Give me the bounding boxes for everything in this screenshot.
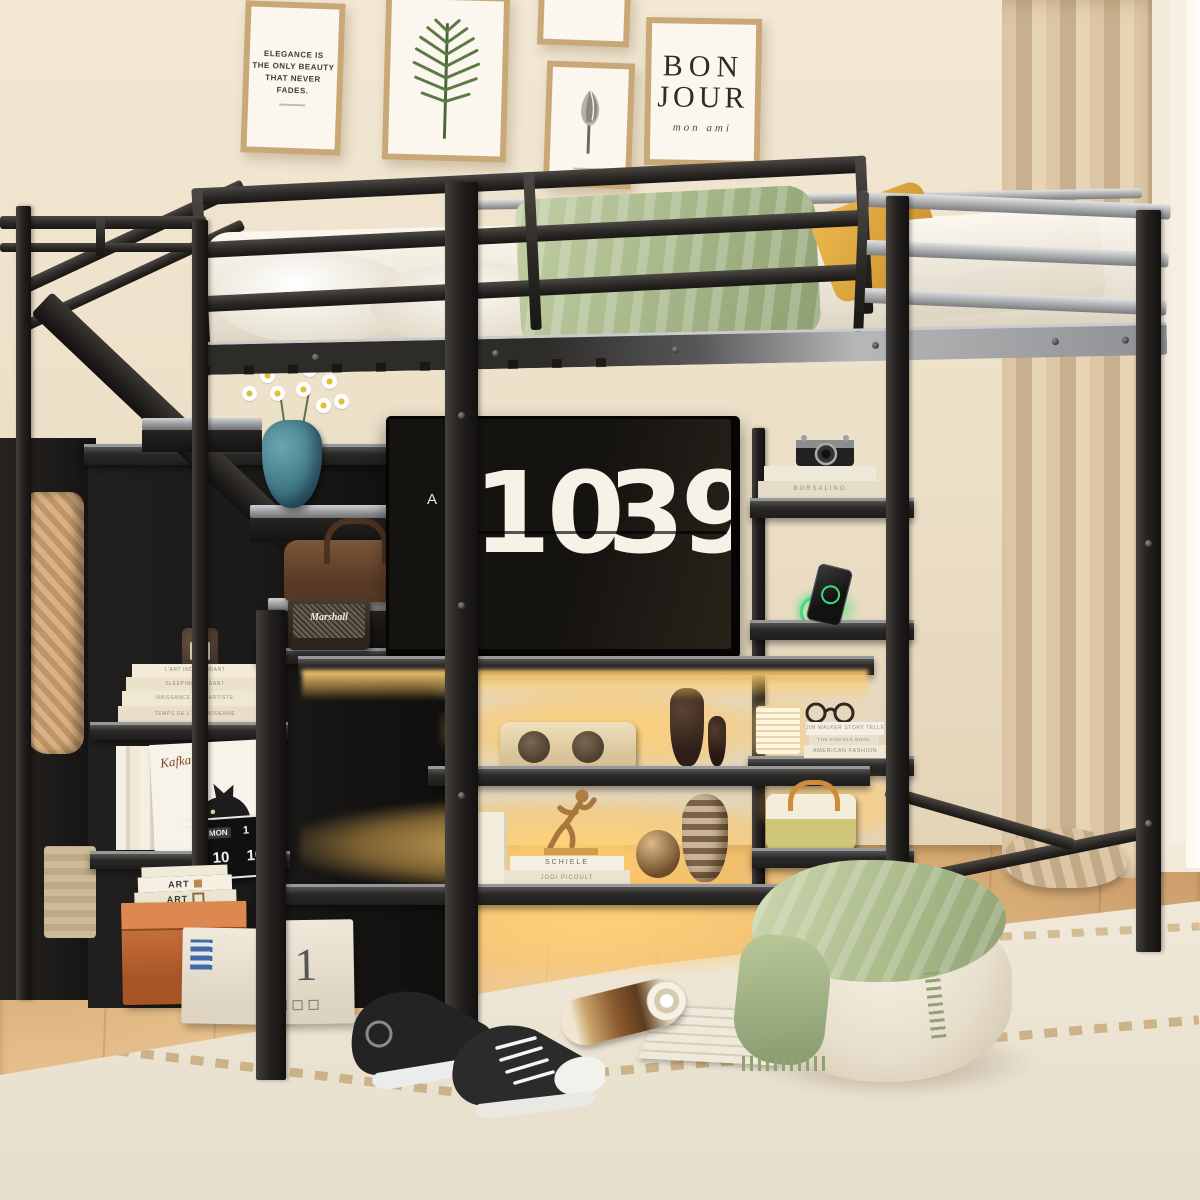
tv-brand-letter: A (427, 491, 437, 508)
ribbed-vase (682, 794, 728, 882)
book-spine: THE KINFOLK BOOK (809, 735, 879, 745)
book-spine: AMERICAN FASHION (804, 745, 886, 758)
tv-clock-hours: 10 (473, 449, 621, 579)
box-icon (292, 1000, 302, 1010)
speaker-driver (518, 731, 550, 763)
stair-post (256, 610, 286, 1080)
dark-vase-small (708, 716, 726, 766)
tv: A 10 39 (386, 416, 740, 658)
tv-clock-minutes: 39 (607, 449, 731, 579)
white-storage-box (181, 927, 267, 1024)
bronze-sphere-vase (636, 830, 680, 878)
vintage-camera (794, 432, 856, 468)
poster-bonjour: BON JOUR mon ami (644, 17, 763, 167)
cat-print-title: Kafka (159, 752, 192, 772)
fabric-storage-bin (44, 846, 96, 938)
eyeglasses (804, 702, 858, 724)
poster-bonjour-word: BON (663, 50, 745, 83)
canvas-basket (766, 794, 856, 854)
flip-clock-date: 1 (242, 824, 249, 836)
bed-post-front-right (886, 196, 909, 912)
flip-clock-day: MON (206, 827, 231, 840)
art-book-logo (194, 879, 202, 887)
runner-statue (540, 786, 604, 862)
poster-elegance-line: FADES. (276, 85, 308, 95)
guardrail-stile (523, 172, 542, 330)
poster-elegance-line: THAT NEVER (265, 73, 321, 84)
poster-palm-leaf (382, 0, 510, 163)
basket-handle (788, 780, 840, 811)
bolt (458, 792, 465, 799)
landing-rail-stile (96, 216, 105, 256)
window-light (1186, 0, 1200, 868)
handbag-handle (324, 518, 388, 564)
poster-bonjour-word: JOUR (657, 81, 749, 114)
sneakers (335, 968, 605, 1118)
bed-post-front-left (445, 182, 478, 1035)
bed-post-far-right (1136, 210, 1161, 952)
book-spine (764, 466, 876, 481)
bolt (312, 354, 319, 361)
bolt (492, 350, 499, 357)
tv-screen: A 10 39 (389, 419, 731, 649)
charging-ring-small (819, 583, 842, 606)
marshall-speaker: Marshall (288, 598, 370, 650)
speaker-brand-logo: Marshall (288, 612, 370, 623)
bed-post (16, 206, 31, 1000)
speaker-driver (572, 731, 604, 763)
poster-small-blank (537, 0, 631, 48)
bolt (458, 412, 465, 419)
book-spine: JIM WALKER STORY TELLER (806, 722, 884, 735)
bolt (1052, 338, 1059, 345)
poster-elegance: ELEGANCE IS THE ONLY BEAUTY THAT NEVER F… (240, 0, 345, 155)
art-book-title: ART (168, 878, 190, 889)
flip-clock-split-line (469, 531, 727, 534)
box-label (190, 939, 213, 969)
book-spine: BORSALINO (758, 481, 882, 498)
wooden-speaker (500, 722, 636, 772)
tower-book-stack: JIM WALKER STORY TELLER THE KINFOLK BOOK… (804, 722, 886, 758)
palm-leaf-illustration (400, 11, 491, 143)
hanging-sweater (26, 492, 84, 754)
tv-led-strip (302, 670, 868, 700)
poster-elegance-line: ELEGANCE IS (264, 49, 324, 60)
blanket-fringe (742, 1056, 828, 1071)
tulip-photo (565, 80, 614, 162)
camera-book-stack: BORSALINO (758, 466, 882, 500)
bolt (458, 602, 465, 609)
box-icon (308, 1000, 318, 1010)
poster-elegance-line: THE ONLY BEAUTY (252, 61, 334, 73)
bolt (872, 342, 879, 349)
blanket-tail (730, 932, 835, 1069)
lit-book-pages (756, 706, 800, 754)
bedroom-scene: ELEGANCE IS THE ONLY BEAUTY THAT NEVER F… (0, 0, 1200, 1200)
bolt (1145, 540, 1152, 547)
bolt (1145, 820, 1152, 827)
poster-bonjour-subtitle: mon ami (673, 121, 732, 134)
bolt (672, 346, 679, 353)
bolt (1122, 337, 1129, 344)
poster-elegance-caption-line (279, 104, 305, 107)
upright-white-book (478, 812, 507, 884)
guardrail-front (191, 156, 873, 349)
